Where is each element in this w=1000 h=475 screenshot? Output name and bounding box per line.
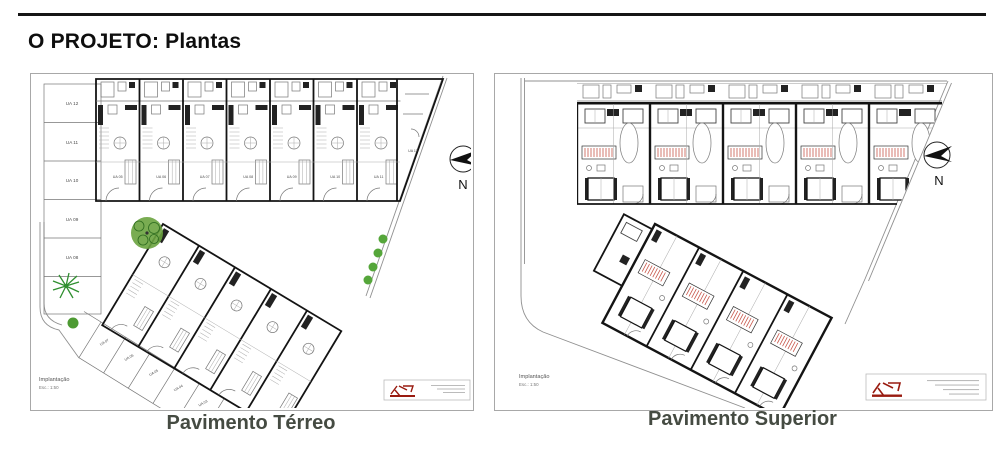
- unit-strip: [577, 83, 947, 204]
- unit-label: UA 12: [408, 149, 418, 153]
- unit-label: UA 08: [243, 175, 253, 179]
- upper-floor-panel: N Implantação Esc.: 1:50: [494, 73, 993, 411]
- page-title: O PROJETO: Plantas: [28, 30, 241, 54]
- unit-label: UA 07: [200, 175, 210, 179]
- north-label: N: [458, 177, 467, 192]
- plan-note-scale: Esc.: 1:50: [39, 385, 59, 390]
- slide: O PROJETO: Plantas: [0, 0, 1000, 475]
- ground-floor-panel: UA 12 UA 11 UA 10 UA 09 UA 08 UA 05 UA 0…: [30, 73, 474, 411]
- courtyard-cluster: [102, 224, 341, 408]
- bush: [68, 318, 79, 329]
- plan-note-scale: Esc.: 1:50: [519, 382, 539, 387]
- unit-label: UA 10: [330, 175, 340, 179]
- unit-label: UA 09: [287, 175, 297, 179]
- plan-note-title: Implantação: [519, 374, 549, 380]
- tree: [131, 217, 163, 249]
- unit-label: UA 05: [113, 175, 123, 179]
- parking-stall-label: UA 09: [66, 217, 79, 222]
- parking-stall-label: UA 05: [149, 369, 159, 377]
- upper-cluster: [574, 209, 831, 408]
- title-block: [866, 374, 986, 400]
- parking-stall-label: UA 12: [66, 101, 79, 106]
- plan-note-title: Implantação: [39, 377, 69, 383]
- unit-label: UA 06: [156, 175, 166, 179]
- right-plan-caption: Pavimento Superior: [494, 408, 991, 431]
- top-rule: [18, 13, 986, 16]
- compass-north-icon: N: [924, 142, 952, 188]
- left-plan-caption: Pavimento Térreo: [30, 412, 472, 435]
- parking-stall-label: UA 03: [198, 399, 208, 407]
- parking-stall-label: UA 10: [66, 178, 79, 183]
- compass-north-icon: N: [450, 146, 471, 192]
- ground-floor-plan: UA 12 UA 11 UA 10 UA 09 UA 08 UA 05 UA 0…: [31, 74, 471, 408]
- north-label: N: [934, 173, 943, 188]
- parking-stall-label: UA 11: [66, 140, 79, 145]
- parking-stall-label: UA 08: [66, 255, 79, 260]
- unit-label: UA 11: [374, 175, 384, 179]
- parking-stall-label: UA 04: [173, 384, 183, 392]
- parking-stall-label: UA 07: [99, 338, 109, 346]
- title-block: [384, 380, 470, 400]
- unit-strip: UA 05 UA 06 UA 07 UA 08 UA 09 UA 10 UA 1…: [96, 79, 443, 201]
- parking-stall-label: UA 06: [124, 353, 134, 361]
- upper-floor-plan: N Implantação Esc.: 1:50: [495, 74, 990, 408]
